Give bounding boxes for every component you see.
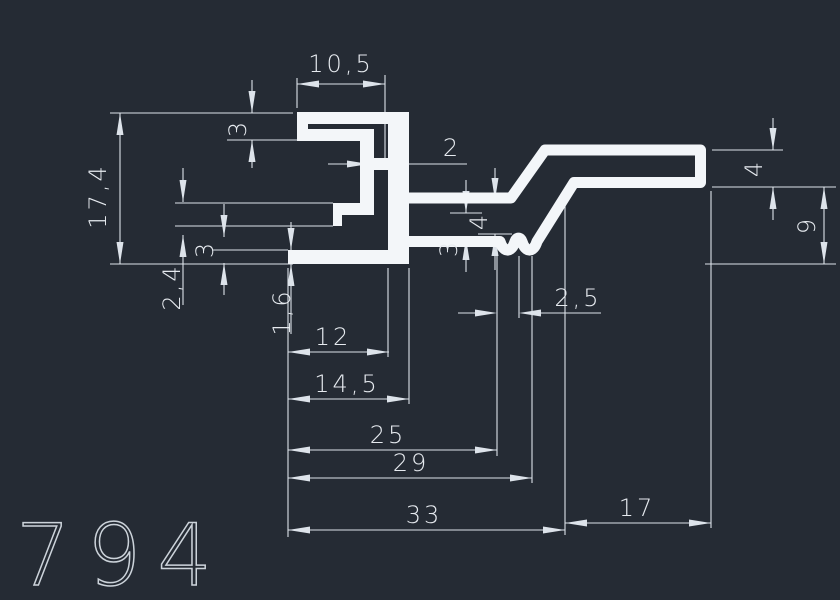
dim-25-label: 25 — [370, 421, 407, 449]
dim-1-6-label: 1,6 — [268, 288, 296, 335]
dim-9-label: 9 — [793, 216, 821, 234]
dim-3-top-label: 3 — [224, 119, 252, 137]
dim-33-label: 33 — [406, 501, 443, 529]
dim-17-label: 17 — [619, 494, 656, 522]
profile-wall-segment-3 — [360, 129, 374, 209]
dim-3-left-label: 3 — [191, 240, 219, 258]
dim-14-5-label: 14,5 — [314, 370, 379, 398]
dim-29-label: 29 — [393, 449, 430, 477]
cad-viewport: 10,51214,52529331722,517,432,431,64349 7… — [0, 0, 840, 600]
dim-4-right-label: 4 — [740, 159, 768, 177]
profile-wall-segment-8 — [288, 250, 409, 264]
dim-4-mid-label: 4 — [465, 212, 493, 230]
dim-2-label: 2 — [443, 134, 461, 162]
dim-2-4-label: 2,4 — [158, 263, 186, 310]
cad-drawing-canvas[interactable]: 10,51214,52529331722,517,432,431,64349 7… — [0, 0, 840, 600]
profile-wall-segment-7 — [388, 112, 409, 253]
dim-2-5-label: 2,5 — [554, 284, 601, 312]
profile-wall-segment-4 — [333, 203, 374, 215]
part-number-label: 794 — [16, 506, 228, 600]
dim-17-4-label: 17,4 — [84, 163, 112, 228]
dim-10-5-label: 10,5 — [308, 50, 373, 78]
profile-wall-segment-5 — [333, 215, 342, 226]
dim-3-mid-label: 3 — [435, 239, 463, 257]
profile-wall-segment-6 — [374, 158, 388, 170]
dim-12-label: 12 — [315, 323, 352, 351]
